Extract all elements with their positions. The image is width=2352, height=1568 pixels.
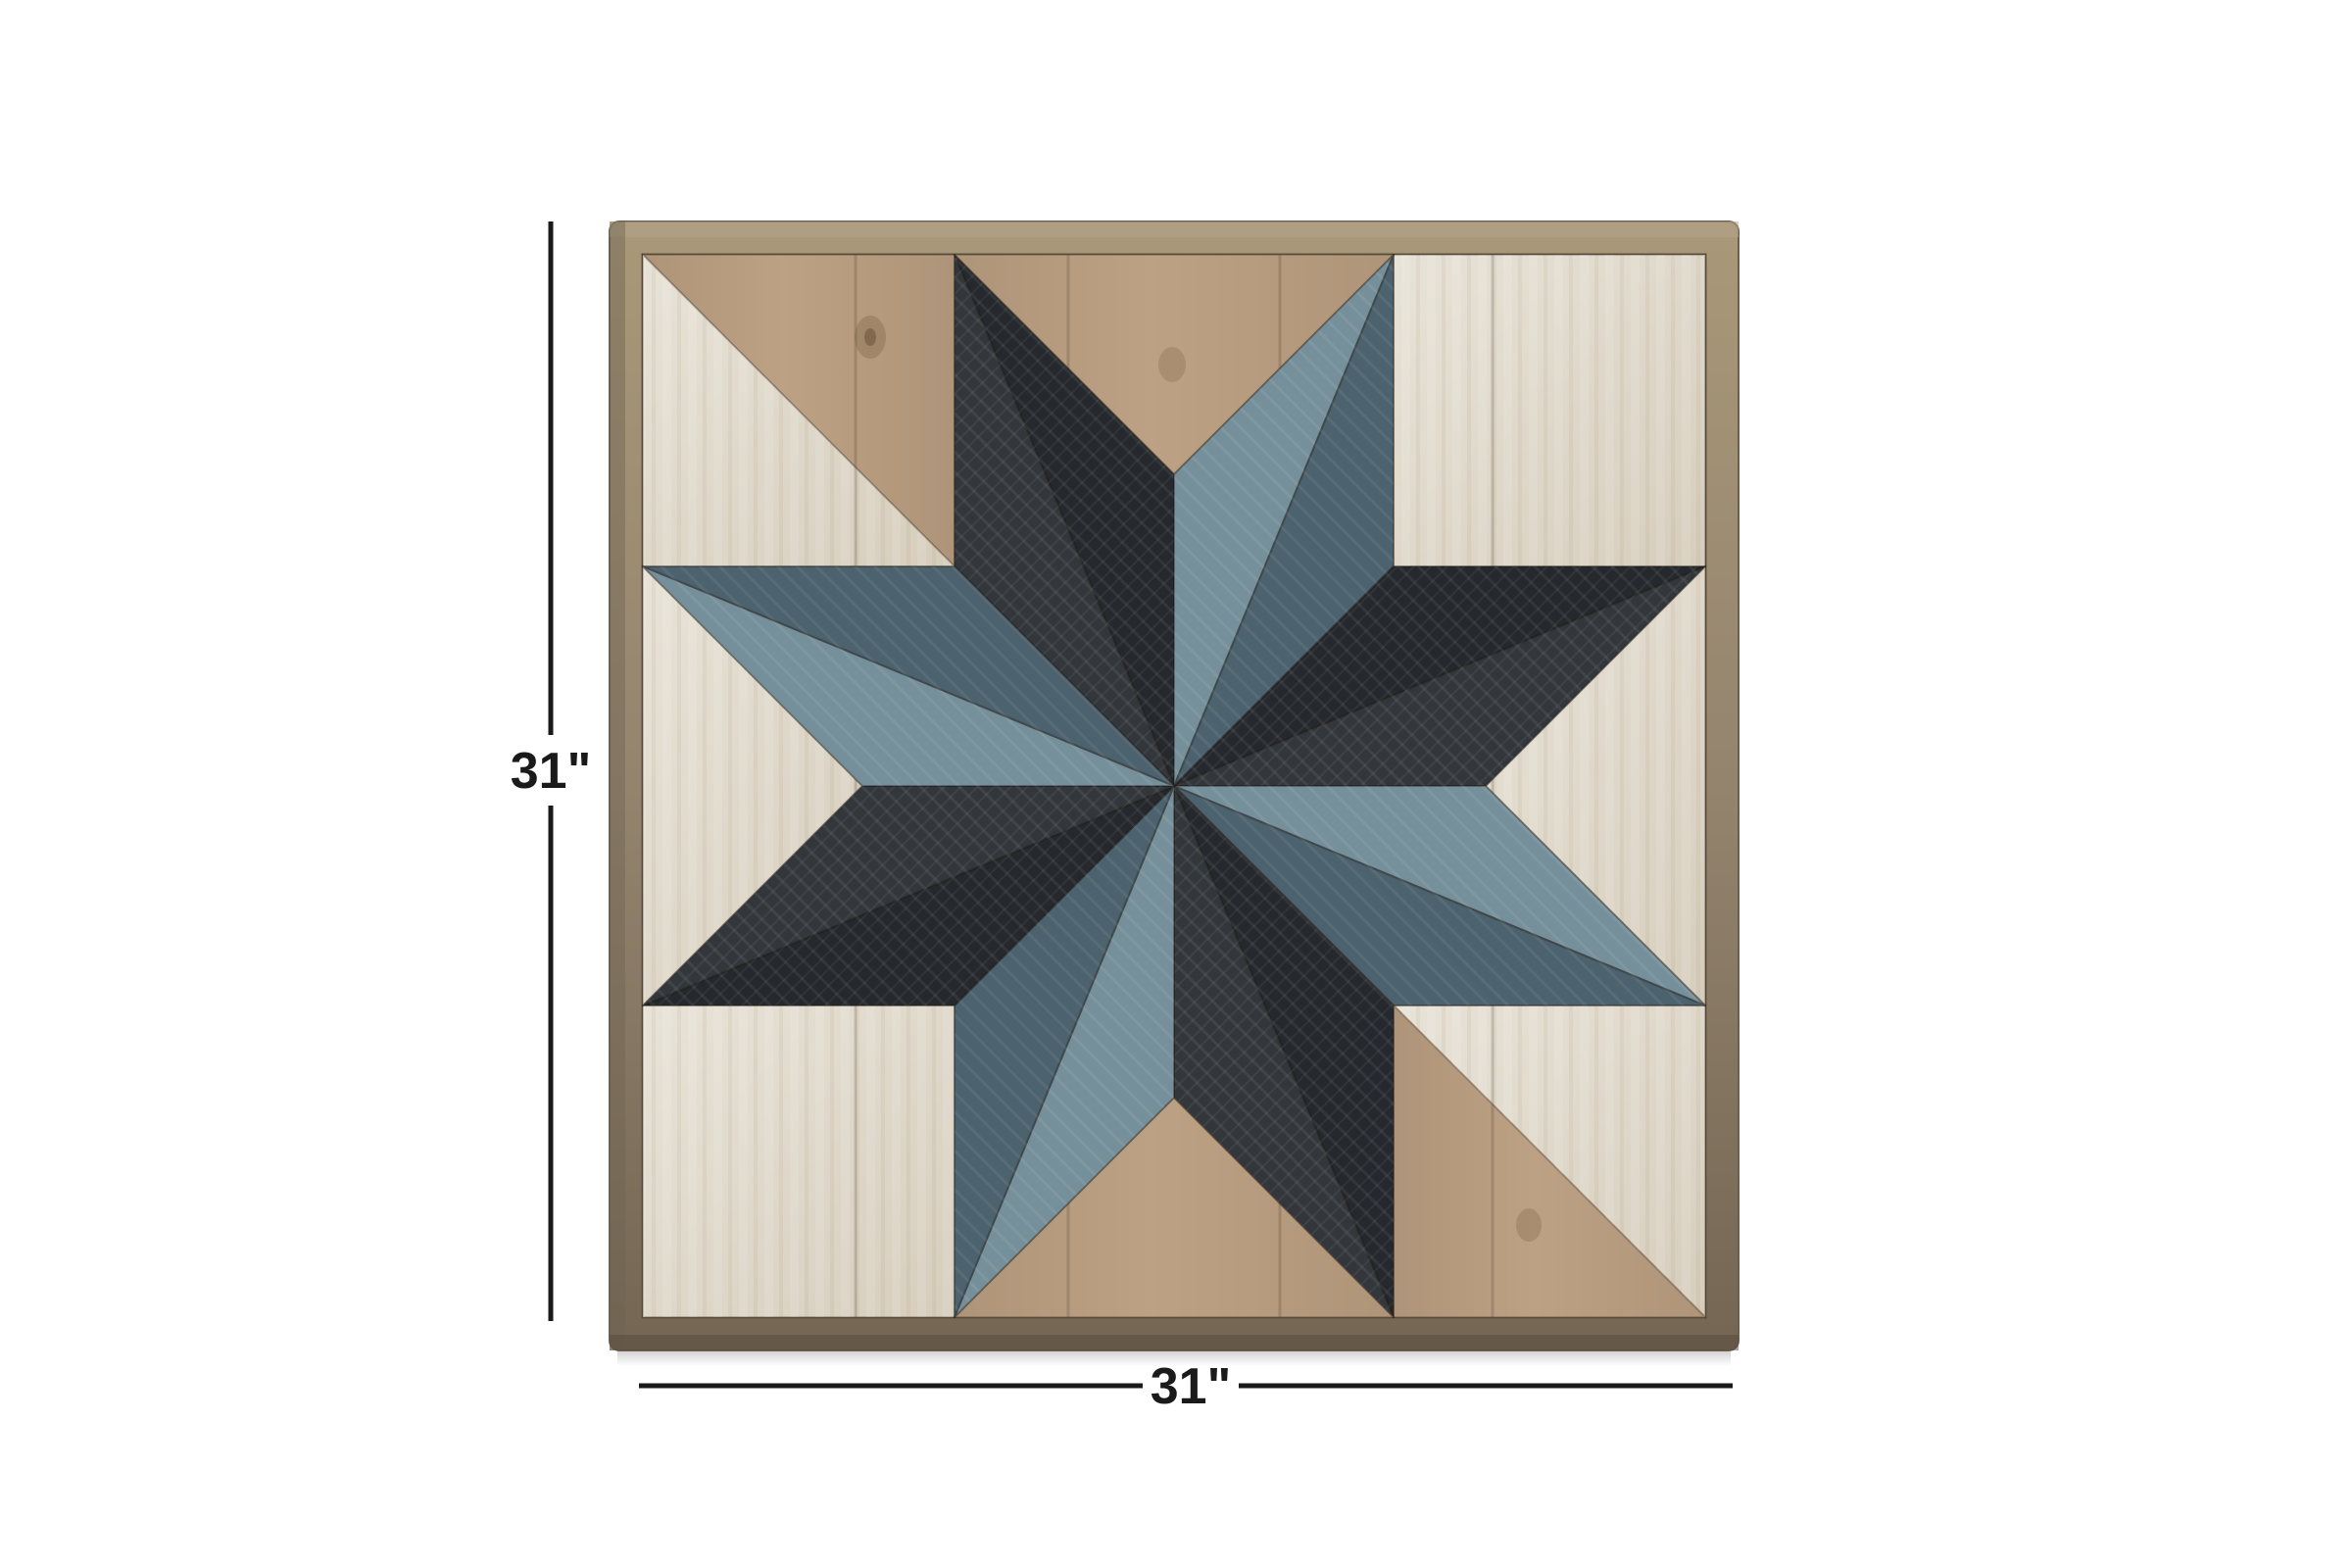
product-photo-canvas: 31" 31" <box>0 0 2352 1568</box>
width-dimension: 31" <box>639 1358 1733 1415</box>
height-dimension: 31" <box>511 221 592 1321</box>
frame-bottom-shade <box>610 1335 1739 1350</box>
width-dimension-label: 31" <box>1151 1358 1232 1415</box>
height-dimension-label: 31" <box>511 743 592 800</box>
wood-knot-core <box>864 328 876 346</box>
product-photo: 31" 31" <box>0 0 2352 1568</box>
frame-top-highlight <box>610 221 1739 237</box>
wood-knot <box>1516 1208 1542 1242</box>
wood-knot <box>1158 347 1186 382</box>
frame-left-shade <box>610 221 625 1350</box>
artwork <box>610 221 1739 1366</box>
